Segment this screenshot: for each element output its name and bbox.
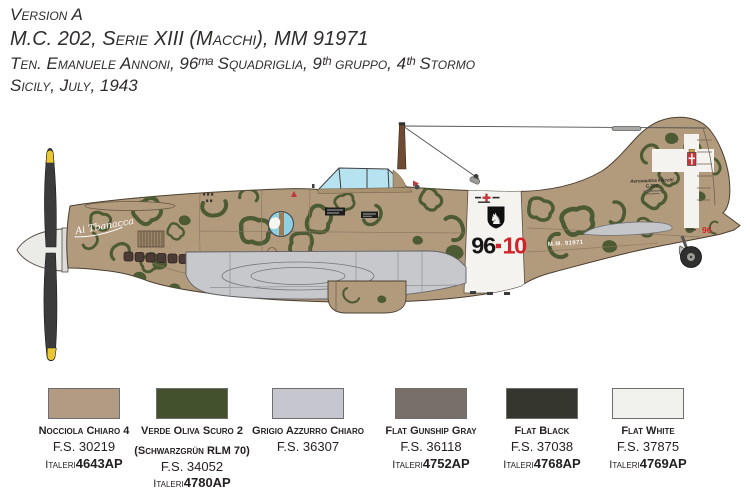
paint-code: 4752AP [423,456,470,471]
italeri-ref: Italeri4769AP [572,456,724,473]
brand-label: Italeri [392,459,422,471]
headrest [393,170,406,188]
radiator-scoop [328,281,406,313]
instruction-sheet: Version A M.C. 202, Serie XIII (Macchi),… [0,0,750,500]
color-chip-2 [156,388,228,419]
color-chip-1 [48,388,120,419]
gun-trough [85,202,175,211]
horse-emblem-icon: ♞ [489,210,502,228]
fuel-cap [415,185,420,190]
tail-stencil-line2: C.202 [646,183,659,189]
turnbuckle [612,127,641,131]
savoy-crown [689,149,695,152]
color-chip-5 [506,388,578,419]
paint-swatch-6: Flat White F.S. 37875 Italeri4769AP [572,388,724,473]
louver-panel [138,231,164,247]
code-group-number: 96 [471,233,496,259]
fs-number: F.S. 34052 [116,459,268,476]
color-chip-6 [612,388,684,419]
brand-label: Italeri [45,459,75,471]
brand-label: Italeri [609,459,639,471]
prop-tip-bottom [47,348,56,360]
spinner [17,228,68,272]
paint-code: 4780AP [184,475,231,490]
brand-label: Italeri [153,478,183,490]
fs-number: F.S. 37875 [572,439,724,456]
prancing-horse-badge: ♞ [488,207,505,229]
italeri-ref: Italeri4780AP [116,475,268,492]
paint-name: Flat White [572,425,724,439]
color-chip-4 [395,388,467,419]
antenna-wire-lead [403,126,479,179]
squadron-roundel-emblem [269,212,294,237]
gunsight [312,184,315,188]
antenna-mast [398,124,407,169]
propeller-blades [44,148,57,361]
prop-tip-top [46,150,54,163]
tail-wheel [679,236,701,268]
paint-code: 4769AP [640,456,687,471]
code-individual-number: 10 [503,233,528,259]
color-chip-3 [272,388,344,419]
wing [186,251,466,299]
tail-code: 96 [702,225,712,235]
cockpit-canopy [312,168,412,194]
paint-legend: Nocciola Chiaro 4 F.S. 30219 Italeri4643… [0,388,750,500]
brand-label: Italeri [503,459,533,471]
